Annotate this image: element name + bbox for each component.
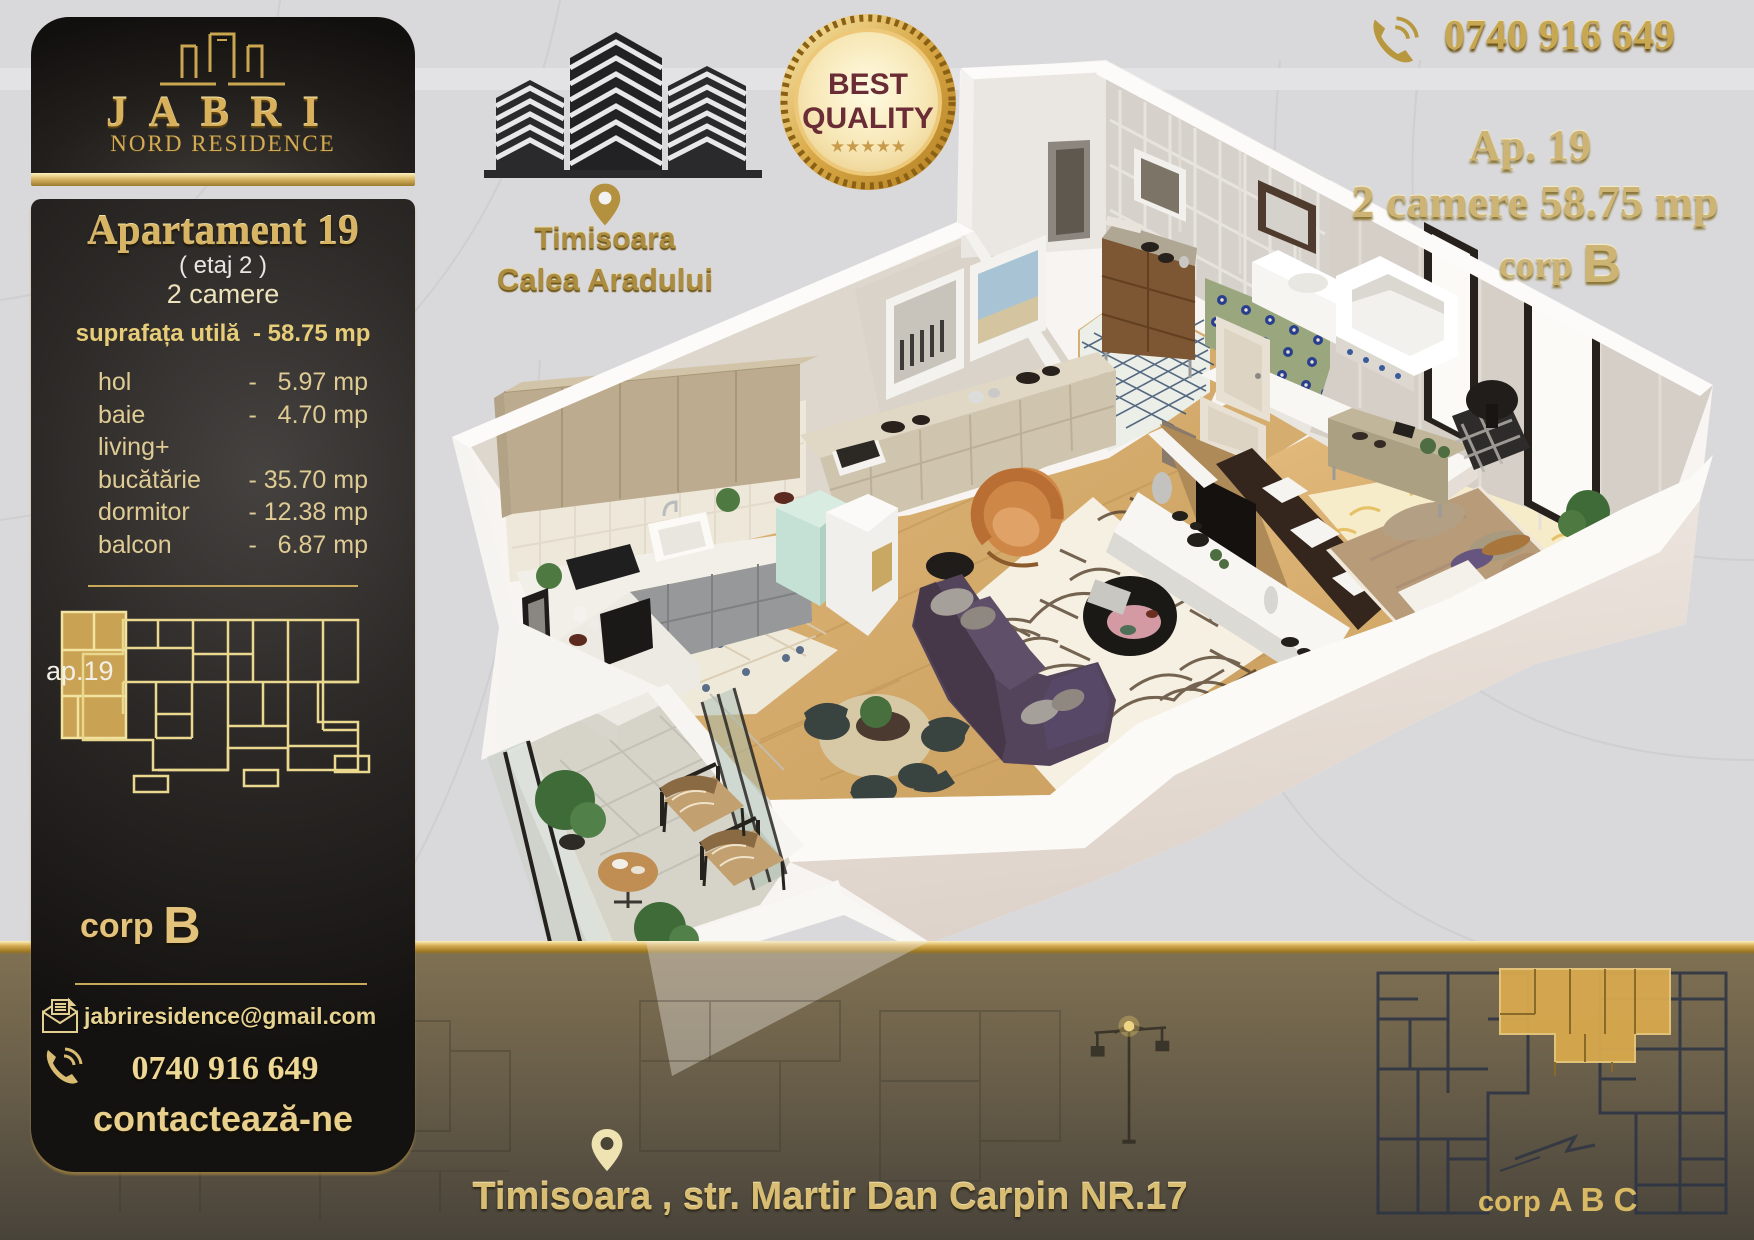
svg-text:★★★★★: ★★★★★ (830, 137, 906, 156)
svg-text:BEST: BEST (828, 68, 908, 101)
svg-text:QUALITY: QUALITY (802, 102, 934, 135)
svg-text:ap.19: ap.19 (46, 656, 114, 686)
svg-text:corp A B C: corp A B C (1478, 1181, 1638, 1218)
